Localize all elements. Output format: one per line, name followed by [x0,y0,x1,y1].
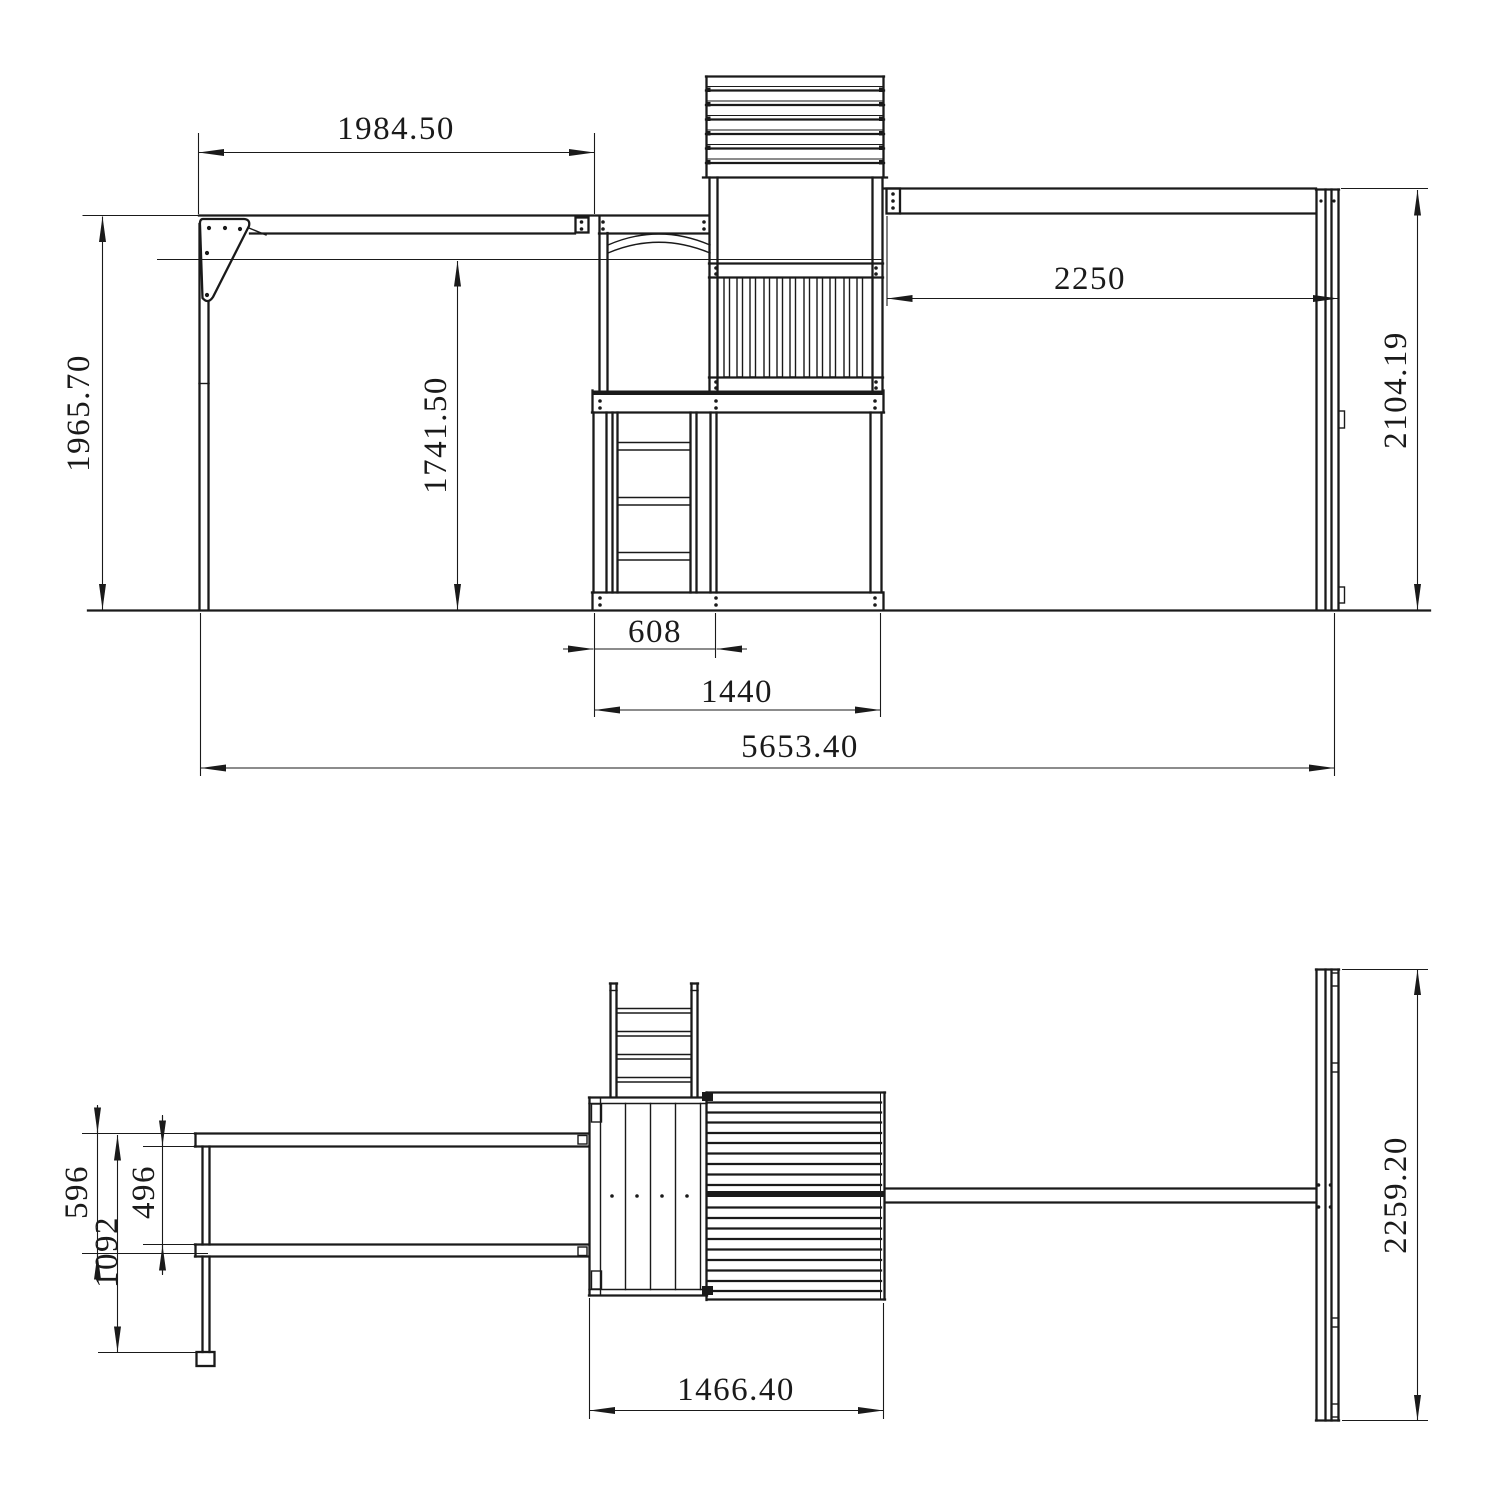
access-ladder-front [613,413,697,593]
dim-label-tower-base-width: 1440 [701,674,773,710]
dim-label-end-frame-width: 2259.20 [1378,1136,1414,1254]
roof-front [703,77,887,178]
play-tower [592,178,884,610]
dim-label-swing-rail-clear-spacing: 496 [126,1165,162,1219]
drawing-canvas: 1984.50 1965.70 1741.50 2250 2104.19 608… [0,0,1500,1500]
dim-label-swing-rail-offset: 596 [59,1165,95,1219]
dim-label-swing-beam-length: 1984.50 [337,111,455,147]
roof-plan [702,1092,885,1300]
platform-plan [589,1093,707,1301]
railing-balusters [724,278,863,378]
dim-label-swing-frame-depth: 1092 [89,1216,125,1288]
arch-panel [599,217,710,391]
dim-label-overall-length: 5653.40 [741,729,859,765]
dim-label-end-frame-height: 2104.19 [1378,331,1414,449]
monkey-beam-front [883,189,1316,214]
dim-label-swing-post-height: 1965.70 [61,354,97,472]
front-elevation-view [83,77,1430,611]
dim-label-platform-rail-height: 1741.50 [418,376,454,494]
swing-frame-plan [195,1134,589,1367]
dim-label-tower-depth: 1466.40 [677,1372,795,1408]
access-ladder-plan [610,984,698,1098]
end-frame-plan [1316,970,1339,1421]
monkey-beam-plan [885,1183,1332,1209]
cad-drawing-page: 1984.50 1965.70 1741.50 2250 2104.19 608… [0,0,1500,1500]
end-frame-front [1316,190,1345,610]
plan-view [195,970,1339,1421]
dim-label-ladder-bay-width: 608 [628,614,682,650]
dim-label-monkey-beam-length: 2250 [1054,261,1126,297]
